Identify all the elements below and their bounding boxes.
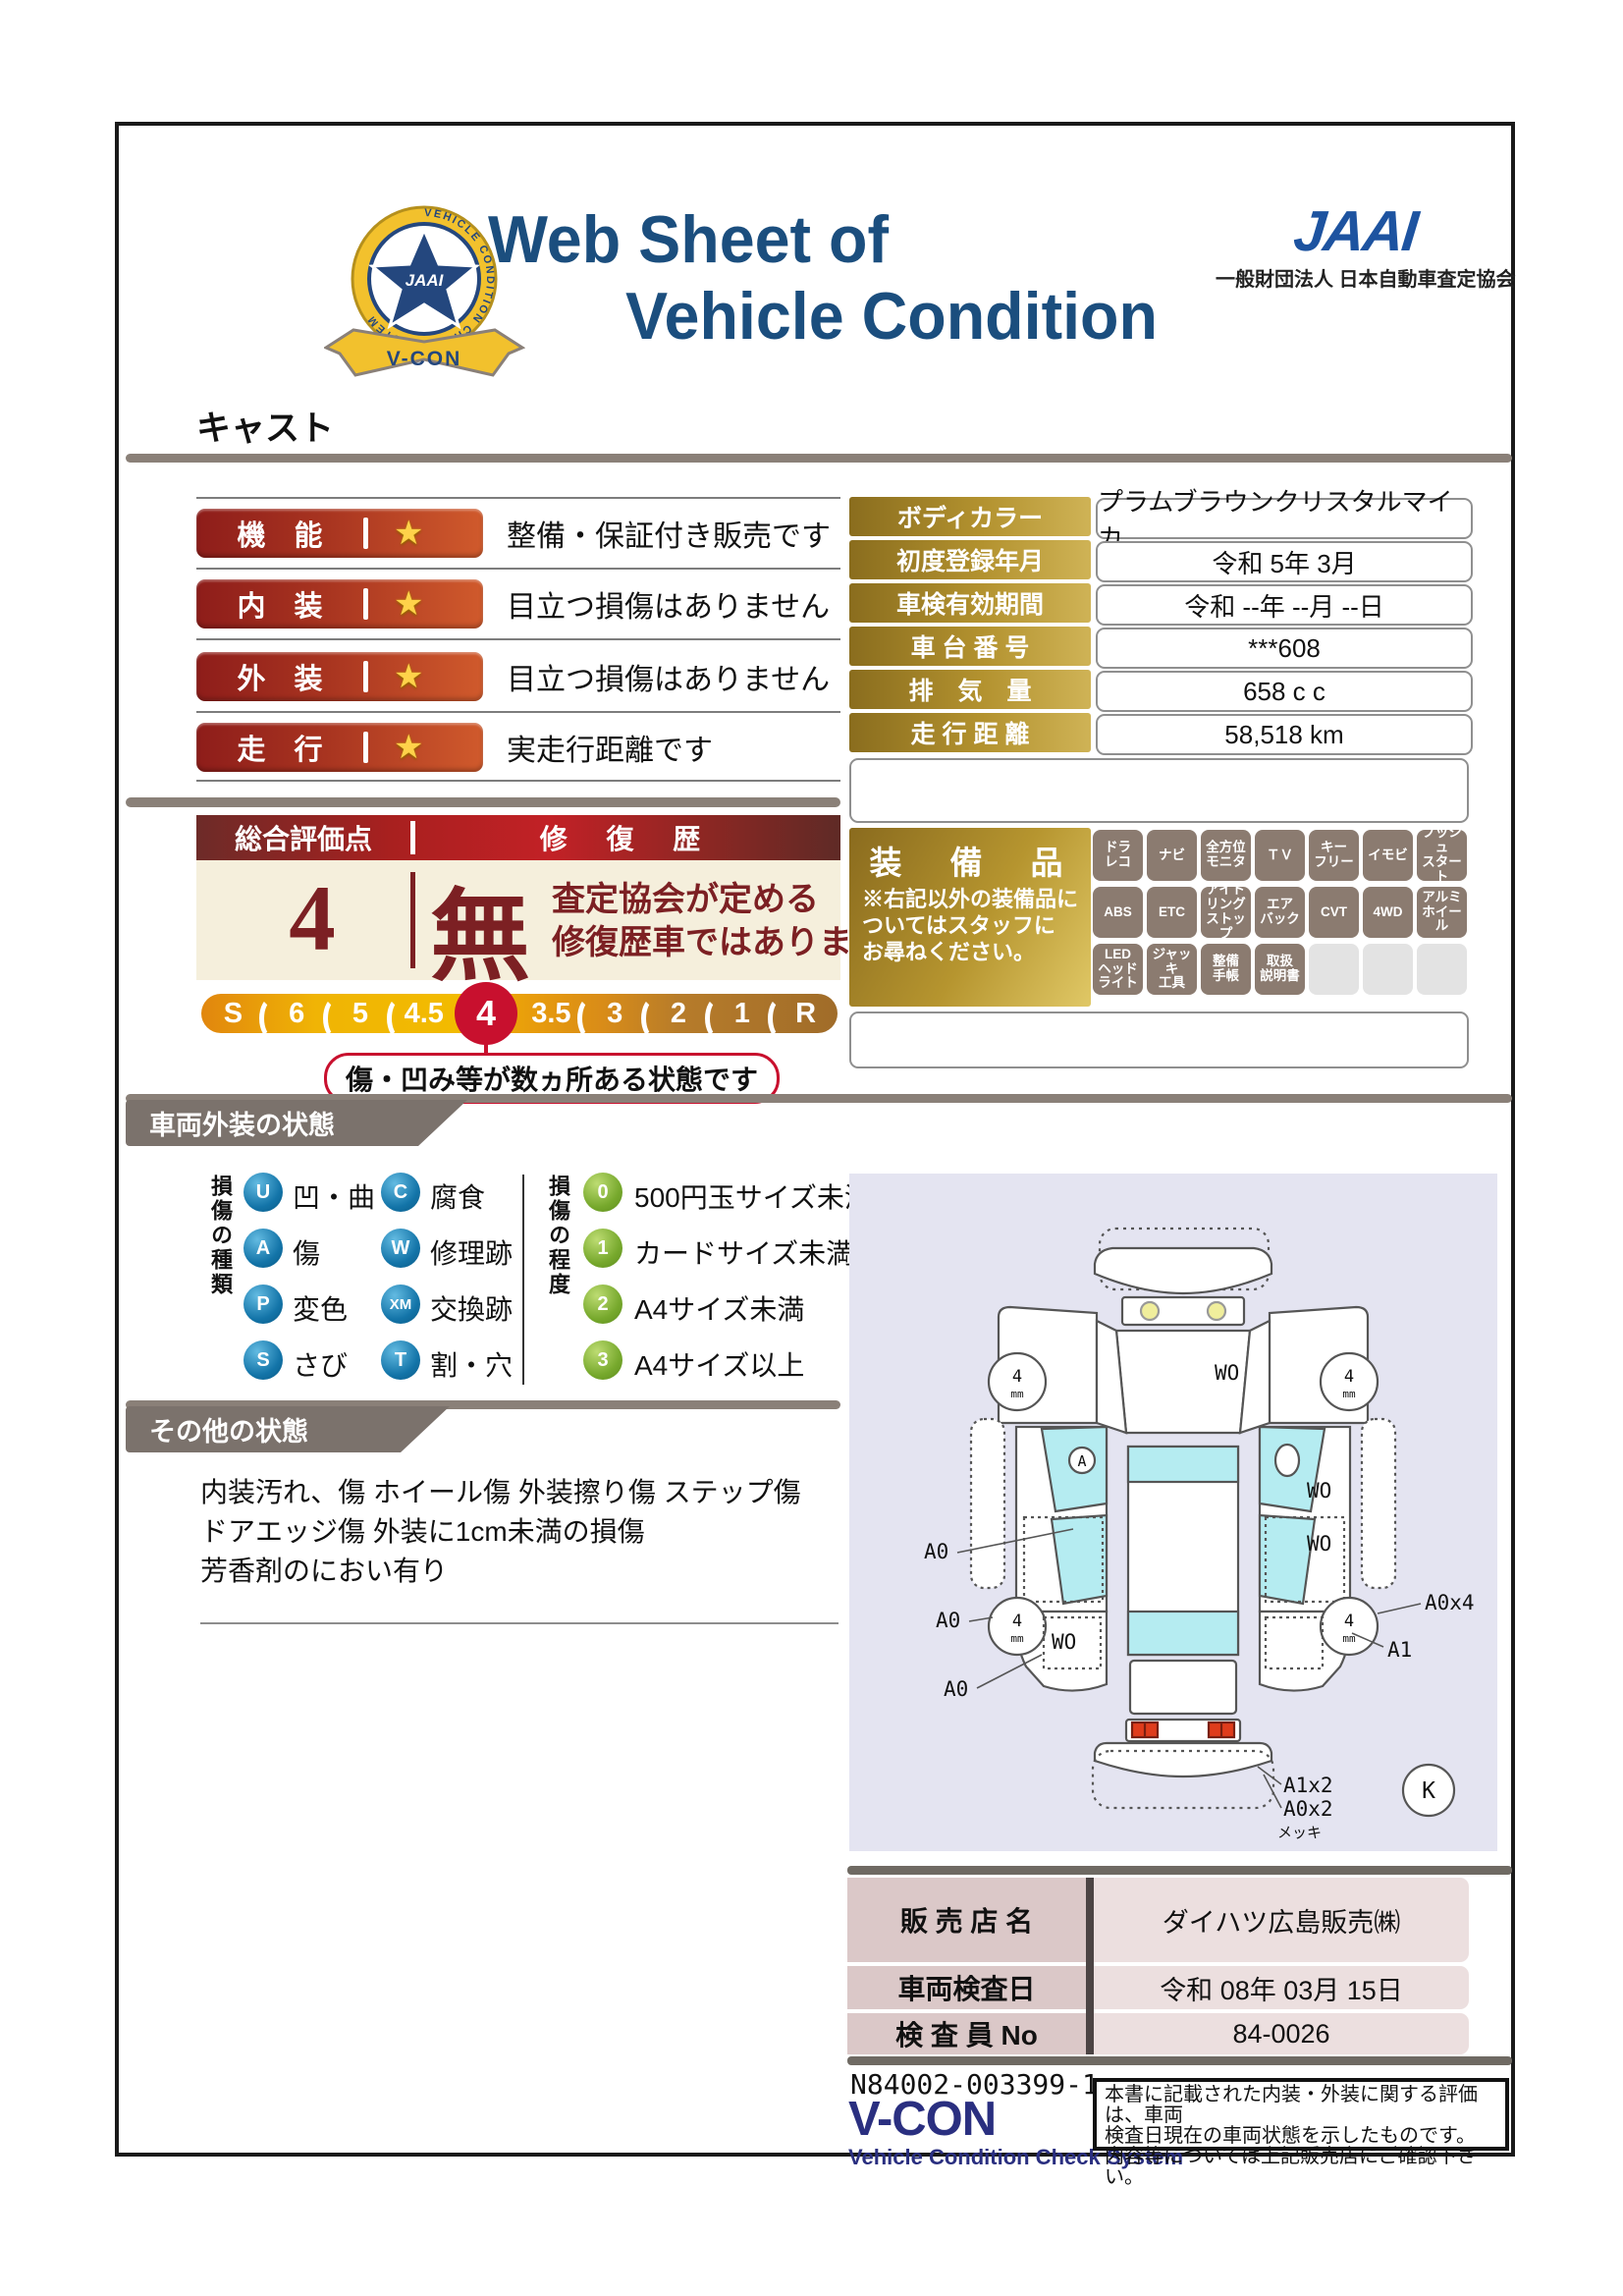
equipment-badge: CVT [1309,887,1359,938]
diagram-label: WO [1215,1361,1239,1385]
equipment-badge: LED ヘッド ライト [1093,944,1143,995]
other-section-banner: その他の状態 [126,1406,450,1452]
equipment-title: 装 備 品 [864,837,1076,884]
diagram-label: A1 [1387,1638,1412,1662]
grade-scale: S 6 5 4.5 3.5 3 2 1 R [201,994,838,1033]
jaai-subtitle: 一般財団法人 日本自動車査定協会 [1216,263,1516,292]
damage-degree-code: 0 [583,1173,622,1212]
info-value: 令和 --年 --月 --日 [1096,584,1473,626]
svg-text:4: 4 [1012,1612,1022,1631]
grade-chip: 3.5 [519,998,583,1030]
inspector-no-label: 検 査 員 No [847,2013,1086,2054]
footer-note: 本書に記載された内装・外装に関する評価は、車両 検査日現在の車両状態を示したもの… [1093,2078,1509,2151]
damage-type-name: 腐食 [430,1176,485,1216]
equipment-badge: 全方位 モニタ [1201,830,1251,881]
info-label: 排 気 量 [849,670,1091,709]
damage-type-code: A [243,1229,283,1268]
dealer-label: 販 売 店 名 [847,1878,1086,1962]
overall-score-title: 総合評価点 [196,818,410,857]
info-value: 58,518 km [1096,714,1473,755]
info-label: ボディカラー [849,497,1091,536]
rating-desc: 目立つ損傷はありません [507,655,830,698]
equipment-badge: ABS [1093,887,1143,938]
rating-pill: 外 装 ★ [196,652,483,701]
equipment-note: ※右記以外の装備品に ついてはスタッフに お尋ねください。 [862,886,1078,965]
equipment-badge: ETC [1147,887,1197,938]
equipment-badge: ジャッキ 工具 [1147,944,1197,995]
equipment-badge: 整備 手帳 [1201,944,1251,995]
damage-type-name: 割・穴 [430,1344,513,1384]
equipment-badge: ＴＶ [1255,830,1305,881]
svg-text:mm: mm [1010,1632,1024,1645]
header-divider [126,454,1512,463]
damage-type-name: 凹・曲 [293,1176,375,1216]
rating-row-interior: 内 装 ★ 目立つ損傷はありません [196,575,842,632]
inspector-no-value: 84-0026 [1094,2013,1469,2054]
jaai-logo: JAAI [1290,198,1419,264]
car-damage-diagram: WO A WO WO WO A0 A0 A0 A0x4 A1 A1x2 A0x2… [849,1174,1497,1851]
star-icon: ★ [394,728,423,767]
diagram-label: WO [1052,1630,1076,1654]
rating-desc: 整備・保証付き販売です [507,512,831,555]
rating-pill: 機 能 ★ [196,509,483,558]
equipment-badge: 取扱 説明書 [1255,944,1305,995]
diagram-label: K [1422,1778,1435,1804]
star-icon: ★ [394,514,423,553]
damage-type-label: 損傷の種類 [204,1175,236,1297]
inspection-date-label: 車両検査日 [847,1966,1086,2009]
equipment-empty-cell [849,1011,1469,1068]
equipment-badge: プッシュ スタート [1417,830,1467,881]
equipment-badge: ドラ レコ [1093,830,1143,881]
info-label: 車検有効期間 [849,583,1091,623]
sheet-title-line1: Web Sheet of [488,201,889,278]
vehicle-condition-sheet: VEHICLE CONDITION CHECK SYSTEM JAAI V-CO… [0,0,1623,2296]
exterior-section-banner: 車両外装の状態 [126,1100,467,1146]
diagram-label: A0 [924,1540,948,1563]
overall-score-header: 総合評価点 修 復 歴 [196,815,840,860]
vcon-logo: V-CON [848,2092,996,2147]
equipment-badge: キー フリー [1309,830,1359,881]
damage-degree-name: カードサイズ未満 [634,1232,853,1272]
rating-row-exterior: 外 装 ★ 目立つ損傷はありません [196,648,842,705]
info-value: ***608 [1096,628,1473,669]
vehicle-name: キャスト [196,401,334,451]
rating-label: 内 装 [196,583,363,625]
svg-text:4: 4 [1344,1367,1354,1387]
damage-type-code: C [381,1173,420,1212]
rating-row-mileage: 走 行 ★ 実走行距離です [196,719,842,776]
damage-type-name: 変色 [293,1288,348,1328]
damage-degree-code: 2 [583,1285,622,1324]
info-empty-cell [849,758,1469,823]
diagram-label: メッキ [1277,1824,1322,1841]
equipment-badge: 4WD [1363,887,1413,938]
selected-grade: 4 [455,982,517,1045]
rating-row-function: 機 能 ★ 整備・保証付き販売です [196,505,842,562]
equipment-badge: アイド リング ストップ [1201,887,1251,938]
equipment-badge: ナビ [1147,830,1197,881]
diagram-label: WO [1307,1532,1331,1556]
svg-text:mm: mm [1010,1388,1024,1400]
info-label: 車 台 番 号 [849,627,1091,666]
emblem-org-text: JAAI [406,271,445,290]
damage-type-code: W [381,1229,420,1268]
overall-score-value: 4 [253,864,371,972]
rating-label: 走 行 [196,727,363,768]
star-icon: ★ [394,584,423,624]
svg-text:4: 4 [1012,1367,1022,1387]
equipment-badge-empty [1417,944,1467,995]
section-divider [126,797,840,807]
rating-desc: 目立つ損傷はありません [507,582,830,626]
damage-type-code: XM [381,1285,420,1324]
damage-degree-name: 500円玉サイズ未満 [634,1176,872,1216]
damage-type-code: P [243,1285,283,1324]
equipment-badges: ドラ レコ ナビ 全方位 モニタ ＴＶ キー フリー イモビ プッシュ スタート… [1093,830,1471,995]
emblem-ribbon-text: V-CON [387,348,462,370]
damage-degree-label: 損傷の程度 [542,1175,573,1297]
equipment-badge-empty [1309,944,1359,995]
diagram-label: A0 [944,1677,968,1701]
sheet-title-line2: Vehicle Condition [625,278,1158,355]
damage-type-name: 傷 [293,1232,320,1272]
damage-degree-code: 3 [583,1340,622,1380]
svg-text:mm: mm [1342,1388,1356,1400]
dealer-value: ダイハツ広島販売㈱ [1094,1878,1469,1962]
equipment-badge: アルミ ホイール [1417,887,1467,938]
info-label: 初度登録年月 [849,540,1091,579]
star-icon: ★ [394,657,423,696]
rating-label: 機 能 [196,513,363,554]
exterior-section-title: 車両外装の状態 [149,1104,335,1142]
damage-type-name: さび [293,1344,348,1384]
rating-pill: 内 装 ★ [196,579,483,629]
info-value: 令和 5年 3月 [1096,541,1473,582]
inspection-date-value: 令和 08年 03月 15日 [1094,1966,1469,2009]
diagram-label: A0 [936,1609,960,1632]
equipment-badge: エア バック [1255,887,1305,938]
diagram-label: WO [1307,1479,1331,1503]
grade-chip: S [201,998,265,1030]
equipment-badge: イモビ [1363,830,1413,881]
damage-type-code: U [243,1173,283,1212]
damage-type-name: 修理跡 [430,1232,513,1272]
svg-text:mm: mm [1342,1632,1356,1645]
damage-type-code: S [243,1340,283,1380]
damage-type-code: T [381,1340,420,1380]
info-value: プラムブラウンクリスタルマイカ [1096,498,1473,539]
damage-degree-name: A4サイズ以上 [634,1344,804,1384]
info-label: 走 行 距 離 [849,713,1091,752]
diagram-label: A1x2 [1283,1774,1333,1797]
damage-degree-name: A4サイズ未満 [634,1288,804,1328]
rating-desc: 実走行距離です [507,726,713,769]
rating-label: 外 装 [196,656,363,697]
other-condition-text: 内装汚れ、傷 ホイール傷 外装擦り傷 ステップ傷 ドアエッジ傷 外装に1cm未満… [200,1473,801,1591]
diagram-label: A0x4 [1425,1591,1475,1614]
diagram-label: A0x2 [1283,1797,1333,1821]
repair-history-title: 修 復 歴 [415,818,840,857]
svg-text:4: 4 [1344,1612,1354,1631]
rating-pill: 走 行 ★ [196,723,483,772]
damage-type-name: 交換跡 [430,1288,513,1328]
info-value: 658 c c [1096,671,1473,712]
repair-history-value: 無 [430,856,530,1001]
equipment-badge-empty [1363,944,1413,995]
damage-degree-code: 1 [583,1229,622,1268]
other-section-title: その他の状態 [149,1410,308,1449]
diagram-label: A [1077,1452,1086,1470]
